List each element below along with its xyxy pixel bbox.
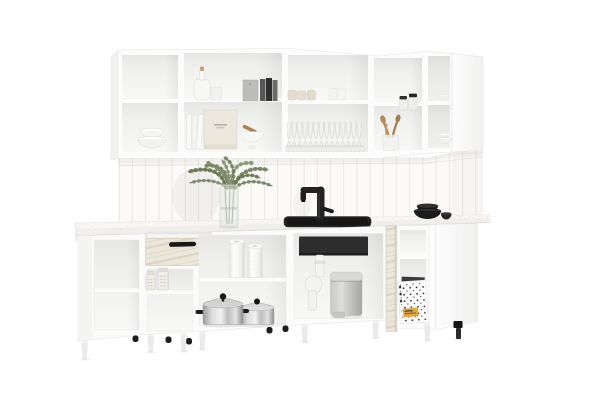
base-cabinet-run: [78, 226, 386, 341]
wall-cabinet-run: [111, 49, 483, 161]
drinking-glass: [211, 87, 222, 100]
corner-wall-shading: [452, 151, 483, 221]
glass-bottle: [194, 79, 210, 100]
wall-cabinet-right-gable: [452, 54, 483, 153]
glass-jar: [399, 99, 408, 110]
shelf-edge: [199, 278, 286, 283]
bin-pedal: [334, 312, 345, 318]
white-book: [192, 115, 197, 149]
kitchen-scene: [0, 0, 600, 400]
right-cabinet-front-edge: [429, 225, 436, 330]
drawer-handle: [169, 242, 196, 247]
beige-box: [204, 110, 237, 149]
box-print-mark: [214, 124, 227, 126]
box-orange-label: [403, 308, 419, 318]
pedal-trash-bin: [330, 272, 364, 319]
right-cabinet-gable: [436, 224, 478, 330]
right-cabinet-black-foot: [454, 321, 463, 339]
kitchen-product-photo: [0, 0, 600, 400]
plate-rack: [286, 122, 365, 152]
sink-unit: [294, 234, 383, 319]
beige-cup: [288, 90, 297, 100]
right-end-cabinet: [429, 224, 478, 330]
dark-book: [273, 80, 278, 101]
stacked-bowls-left-cabinet: [138, 128, 166, 148]
corner-open-shelf: [397, 226, 429, 329]
bottle-cork: [200, 67, 204, 72]
dotted-box: [398, 280, 429, 324]
base-left-gable: [78, 236, 92, 342]
jar-lid: [409, 94, 417, 98]
white-book: [187, 114, 192, 149]
shelf-edge: [94, 288, 139, 293]
dark-book: [260, 79, 266, 101]
open-end-unit: [94, 240, 139, 330]
bin-lid: [330, 272, 363, 281]
pot-lid-knob: [220, 293, 226, 299]
kitchen-sink: [284, 217, 371, 228]
dark-book: [266, 78, 272, 101]
beige-cup: [307, 91, 316, 101]
corner-section: [386, 224, 478, 332]
glass-jar: [409, 97, 418, 110]
wall-cabinet-left-gable: [111, 50, 118, 160]
white-cup: [338, 89, 346, 100]
plant-wall-shadow: [172, 168, 220, 224]
jar-lid: [400, 96, 408, 99]
shelf-edge: [147, 290, 193, 295]
sink-bowl-underside: [299, 237, 368, 256]
beige-cup: [298, 91, 307, 100]
white-cup: [329, 89, 337, 101]
open-shelf-unit: [196, 235, 287, 327]
